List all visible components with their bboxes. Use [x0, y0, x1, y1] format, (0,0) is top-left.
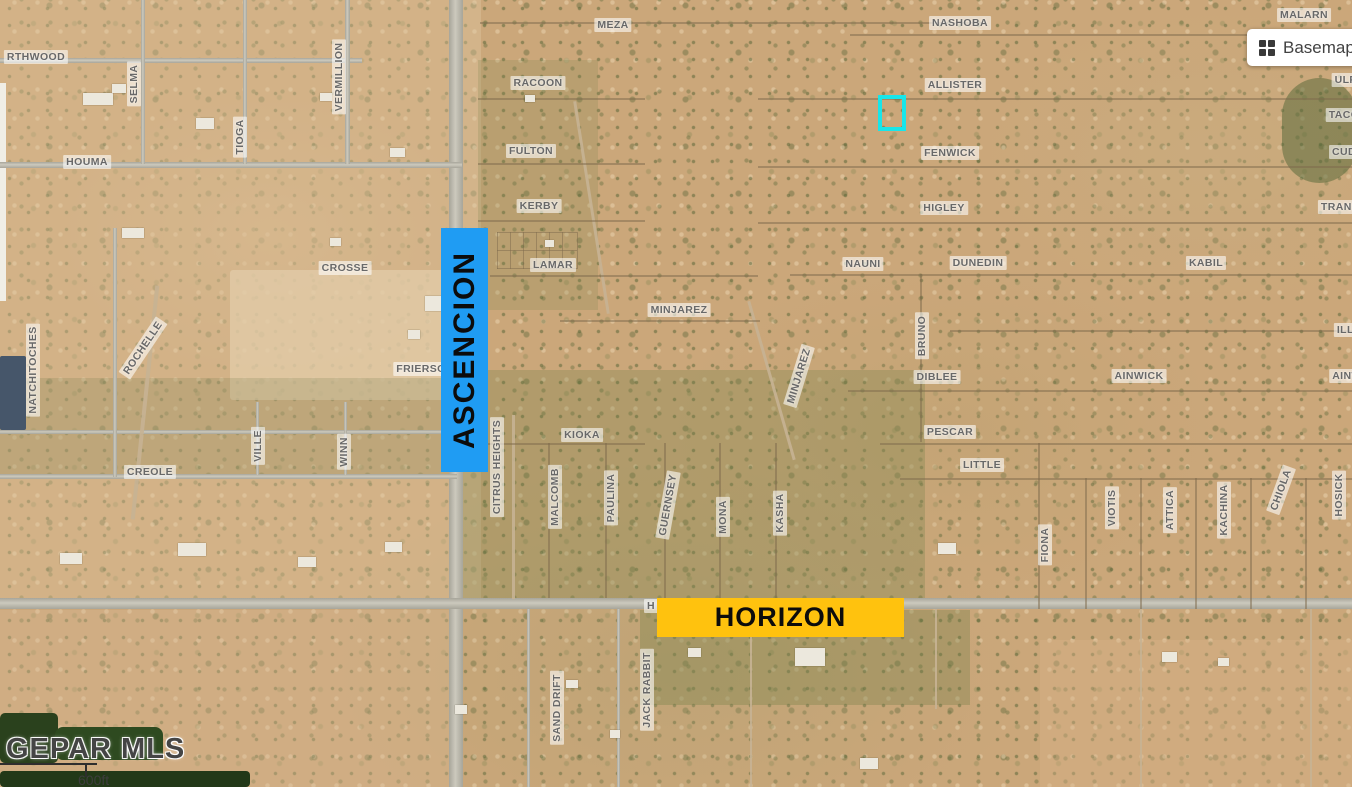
street-label: NAUNI [842, 257, 883, 271]
street-label: ROCHELLE [118, 316, 167, 379]
street-label: RTHWOOD [4, 50, 68, 64]
street-label: FENWICK [921, 146, 979, 160]
street-label: DIBLEE [914, 370, 961, 384]
street-label: H [644, 599, 658, 613]
street-label: DUNEDIN [950, 256, 1007, 270]
street-label: MEZA [594, 18, 631, 32]
street-label: MONA [716, 497, 730, 537]
scale-bar-label: 600ft [78, 772, 109, 787]
street-label: BRUNO [915, 313, 929, 360]
street-label: VIOTIS [1105, 487, 1119, 530]
street-label: CUD [1329, 145, 1352, 159]
street-label: PAULINA [604, 471, 618, 526]
street-label: SELMA [127, 62, 141, 107]
ascencion-road-overlay-text: ASCENCION [448, 251, 482, 449]
street-label: LITTLE [960, 458, 1004, 472]
street-label: TACO [1326, 108, 1352, 122]
street-label: ILLI [1334, 323, 1352, 337]
street-label: KASHA [773, 490, 787, 535]
street-label: HIGLEY [920, 201, 968, 215]
street-label: FIONA [1038, 525, 1052, 566]
street-label: FULTON [506, 144, 556, 158]
street-label: LAMAR [530, 258, 576, 272]
subject-property-highlight [878, 95, 906, 131]
horizon-road-overlay-text: HORIZON [715, 602, 847, 633]
street-label: MINJAREZ [783, 344, 815, 408]
street-label: KACHINA [1217, 481, 1231, 538]
street-label: HOUMA [63, 155, 111, 169]
street-label: HOSICK [1332, 470, 1346, 519]
street-label: PESCAR [924, 425, 976, 439]
street-label: CHIOLA [1266, 465, 1296, 516]
street-label-layer: RTHWOODSELMATIOGAVERMILLIONHOUMAMEZARACO… [0, 0, 1352, 787]
street-label: NATCHITOCHES [26, 323, 40, 416]
street-label: CREOLE [124, 465, 176, 479]
gepar-mls-watermark: GEPAR MLS [6, 733, 185, 766]
street-label: AINWICK [1112, 369, 1167, 383]
street-label: KABIL [1186, 256, 1226, 270]
street-label: MALARN [1277, 8, 1331, 22]
street-label: SAND DRIFT [550, 671, 564, 745]
street-label: CITRUS HEIGHTS [490, 417, 504, 517]
street-label: RACOON [510, 76, 565, 90]
street-label: MINJAREZ [648, 303, 711, 317]
street-label: GUERNSEY [655, 470, 681, 540]
street-label: ATTICA [1163, 487, 1177, 533]
street-label: NASHOBA [929, 16, 991, 30]
street-label: MALCOMB [548, 465, 562, 529]
street-label: WINN [337, 434, 351, 470]
street-label: AINW [1329, 369, 1352, 383]
street-label: TIOGA [233, 116, 247, 157]
street-label: ALLISTER [925, 78, 986, 92]
street-label: ULR [1332, 73, 1352, 87]
basemap-button-label: Basemap [1283, 38, 1352, 58]
ascencion-road-overlay: ASCENCION [441, 228, 488, 472]
street-label: KERBY [517, 199, 562, 213]
map-stage[interactable]: RTHWOODSELMATIOGAVERMILLIONHOUMAMEZARACO… [0, 0, 1352, 787]
street-label: CROSSE [319, 261, 372, 275]
street-label: TRANS [1318, 200, 1352, 214]
basemap-grid-icon [1259, 40, 1275, 56]
street-label: JACK RABBIT [640, 649, 654, 731]
horizon-road-overlay: HORIZON [657, 598, 904, 637]
street-label: VILLE [251, 427, 265, 465]
street-label: KIOKA [561, 428, 603, 442]
basemap-button[interactable]: Basemap [1247, 29, 1352, 66]
street-label: VERMILLION [332, 40, 346, 115]
